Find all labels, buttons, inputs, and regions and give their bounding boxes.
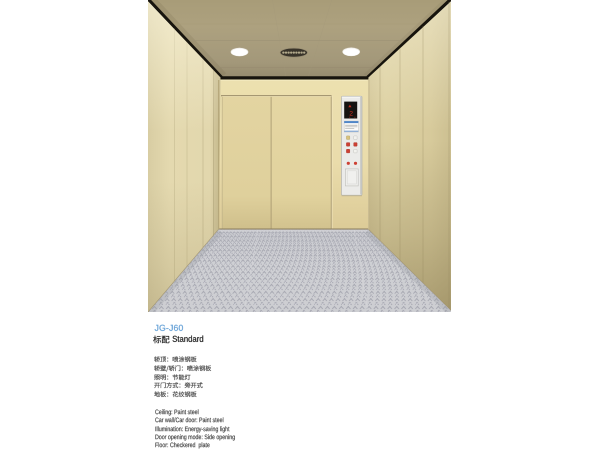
svg-text:2: 2 bbox=[349, 110, 353, 117]
